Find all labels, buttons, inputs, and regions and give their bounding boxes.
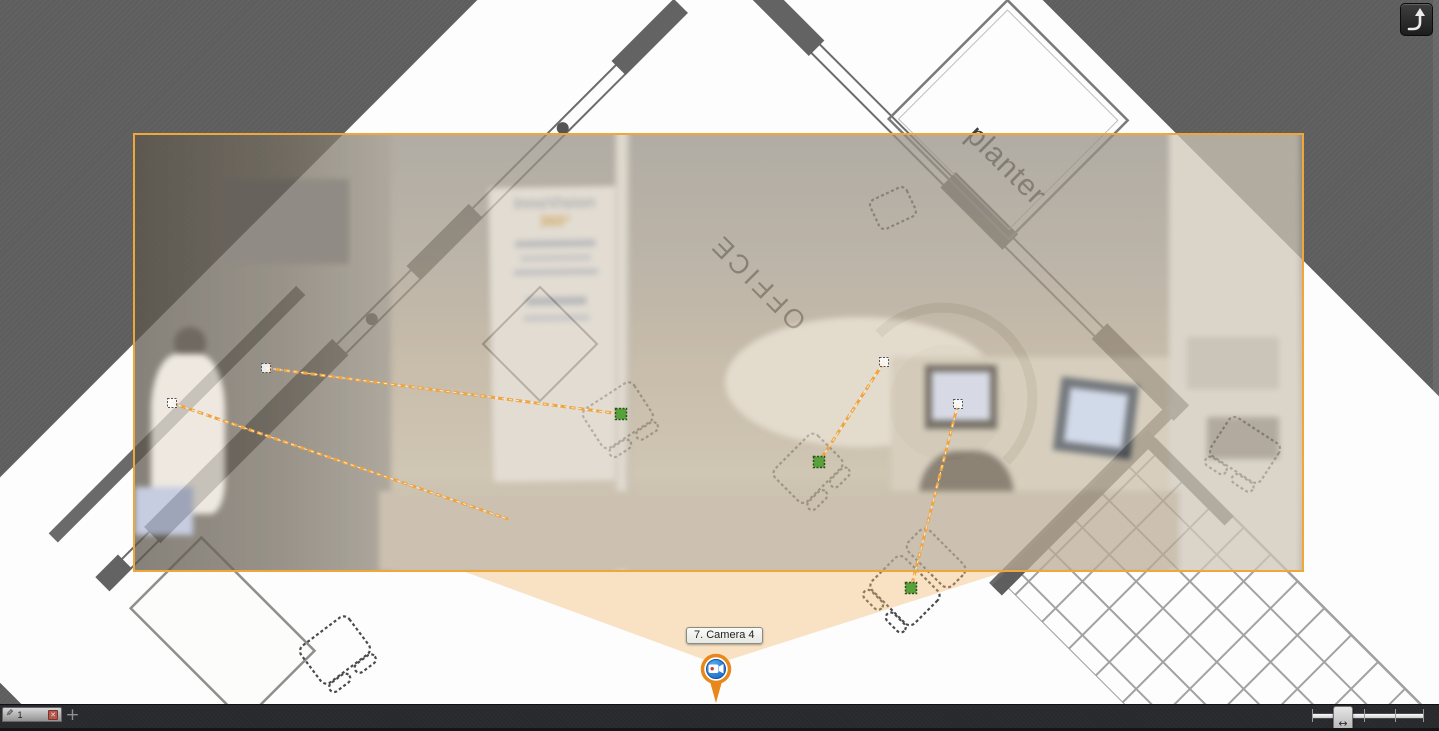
calibration-line[interactable] [266,368,621,414]
calibration-end-point[interactable] [616,409,627,420]
slider-tick [1395,709,1396,722]
calibration-start-point[interactable] [880,358,889,367]
map-zoom-slider: ↔ [1308,705,1430,731]
plus-icon: + [65,705,79,725]
add-plan-button[interactable]: + [65,708,80,723]
calibration-line-highlight [172,403,508,519]
map-editor-stage: planter OFFICE [0,0,1439,731]
slider-tick [1423,709,1424,722]
calibration-line[interactable] [819,362,884,462]
plan-tab-label: 1 [18,710,44,720]
slider-tick [1312,709,1313,722]
pencil-icon[interactable]: ✎ [6,710,14,719]
calibration-layer [0,0,1439,731]
calibration-start-point[interactable] [954,400,963,409]
calibration-end-point[interactable] [906,583,917,594]
camera-name-label[interactable]: 7. Camera 4 [686,627,763,644]
calibration-line-highlight [266,368,621,414]
plan-tab-1[interactable]: ✎ 1 ✕ [2,707,62,722]
calibration-start-point[interactable] [262,364,271,373]
zoom-slider-track[interactable] [1312,713,1424,719]
camera-pin[interactable] [690,648,742,706]
zoom-slider-handle[interactable]: ↔ [1333,706,1353,731]
close-icon[interactable]: ✕ [48,710,58,720]
video-camera-icon [709,664,724,674]
slider-tick [1364,709,1365,722]
plans-tab-bar: ✎ 1 ✕ + ↔ [0,704,1439,731]
calibration-end-point[interactable] [814,457,825,468]
horizontal-resize-icon: ↔ [1338,717,1347,730]
exit-map-editor-button[interactable] [1400,3,1433,36]
return-up-arrow-icon [1401,4,1432,35]
calibration-start-point[interactable] [168,399,177,408]
